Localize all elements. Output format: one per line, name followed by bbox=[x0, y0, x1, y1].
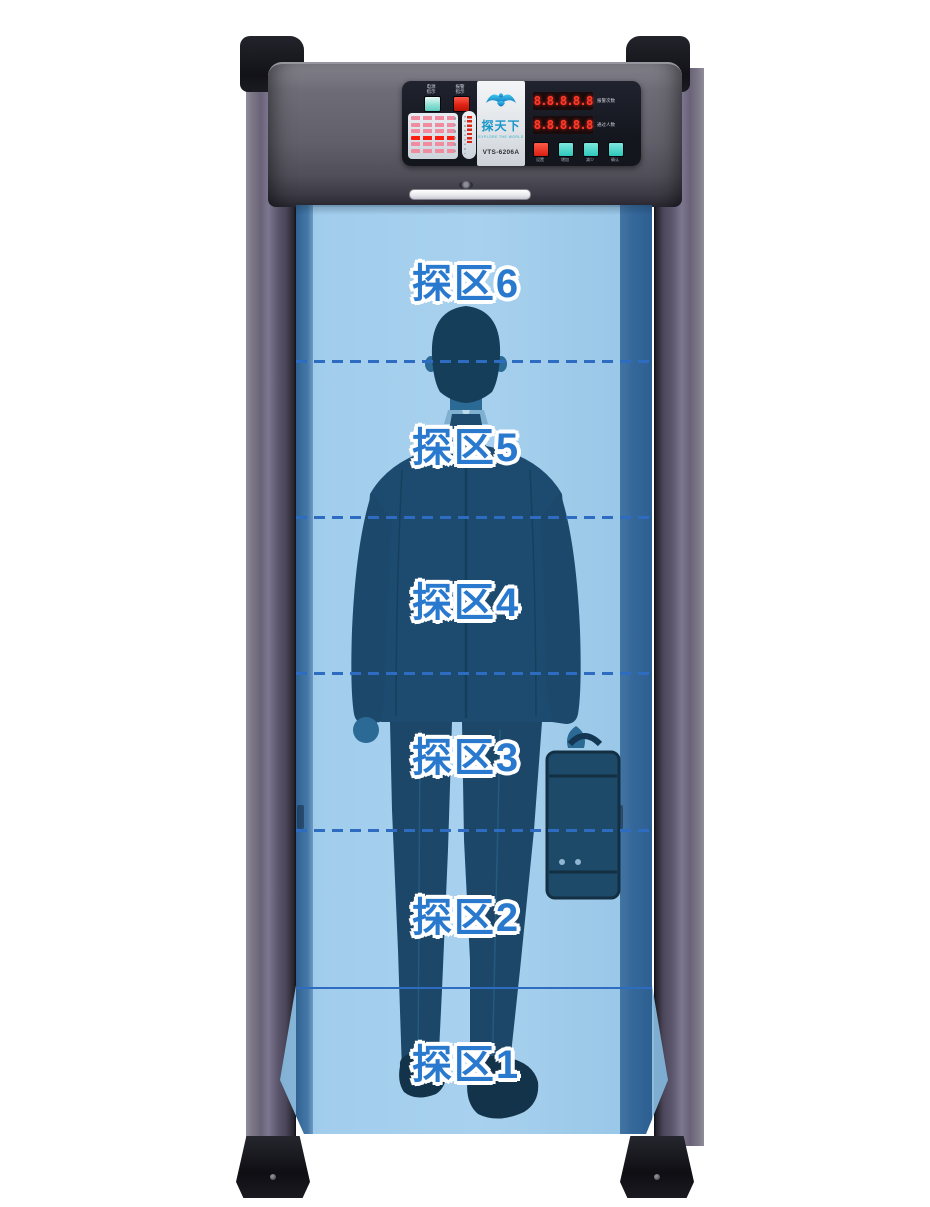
zone-led-row bbox=[411, 116, 455, 120]
set-button-label: 设置 bbox=[533, 157, 547, 163]
zone-label-4: 探区4 bbox=[412, 570, 520, 628]
increase-button-label: 增加 bbox=[558, 157, 572, 163]
brand-name: 探天下 bbox=[477, 117, 525, 134]
decrease-button[interactable] bbox=[583, 142, 599, 157]
increase-button[interactable] bbox=[558, 142, 574, 157]
alarm-count-display: 8.8.8.8.8 bbox=[533, 92, 593, 110]
brand-tagline: EXPLORE THE WORLD bbox=[477, 135, 525, 139]
power-indicator-label: 电源指示 bbox=[425, 84, 437, 94]
zone-divider-solid bbox=[296, 987, 652, 989]
power-indicator-light[interactable] bbox=[424, 96, 441, 112]
buzzer-icon bbox=[459, 181, 473, 189]
alarm-indicator-light[interactable] bbox=[453, 96, 470, 112]
alarm-count-label: 报警次数 bbox=[597, 98, 615, 104]
zone-divider bbox=[296, 829, 652, 832]
zone-label-6: 探区6 bbox=[412, 251, 520, 309]
signal-led-segments bbox=[467, 116, 472, 143]
decrease-button-label: 减少 bbox=[583, 157, 597, 163]
zone-led-row bbox=[411, 129, 455, 133]
signal-strength-bar bbox=[462, 111, 476, 159]
foot-screw bbox=[270, 1174, 276, 1180]
left-pillar-foot bbox=[236, 1136, 310, 1198]
zone-led-matrix bbox=[408, 113, 458, 159]
zone-divider bbox=[296, 516, 652, 519]
status-light-bar bbox=[409, 189, 531, 200]
zone-led-row bbox=[411, 123, 455, 127]
zone-led-row bbox=[411, 142, 455, 146]
zone-led-row bbox=[411, 149, 455, 153]
detection-area: 探区6 探区5 探区4 探区3 探区2 探区1 bbox=[270, 205, 682, 1136]
brand-panel: 探天下 EXPLORE THE WORLD VTS-6206A bbox=[477, 81, 525, 166]
zone-led-row-alarm bbox=[411, 136, 455, 140]
pass-count-label: 通过人数 bbox=[597, 122, 615, 128]
zone-label-5: 探区5 bbox=[412, 415, 520, 473]
pass-count-display: 8.8.8.8.8 bbox=[533, 116, 593, 134]
zone-divider bbox=[296, 360, 652, 363]
brand-logo-icon bbox=[484, 87, 518, 111]
zone-label-3: 探区3 bbox=[412, 725, 520, 783]
zone-label-1: 探区1 bbox=[412, 1032, 520, 1090]
right-pillar-foot bbox=[620, 1136, 694, 1198]
model-number: VTS-6206A bbox=[477, 149, 525, 156]
signal-scale-dots bbox=[464, 116, 466, 154]
confirm-button-label: 确认 bbox=[608, 157, 622, 163]
control-panel: 电源指示 报警指示 探天下 EXPLORE THE WORLD VTS-6206… bbox=[402, 81, 641, 166]
alarm-count-display-row: 8.8.8.8.8 报警次数 bbox=[533, 92, 633, 112]
person-silhouette bbox=[270, 205, 682, 1136]
set-button[interactable] bbox=[533, 142, 549, 157]
panel-button-row: 设置 增加 减少 确认 bbox=[533, 142, 637, 164]
alarm-indicator-label: 报警指示 bbox=[454, 84, 466, 94]
left-pillar bbox=[246, 68, 296, 1146]
zone-divider bbox=[296, 672, 652, 675]
pass-count-display-row: 8.8.8.8.8 通过人数 bbox=[533, 116, 633, 136]
zone-label-2: 探区2 bbox=[412, 885, 520, 943]
right-pillar bbox=[654, 68, 704, 1146]
foot-screw bbox=[654, 1174, 660, 1180]
confirm-button[interactable] bbox=[608, 142, 624, 157]
